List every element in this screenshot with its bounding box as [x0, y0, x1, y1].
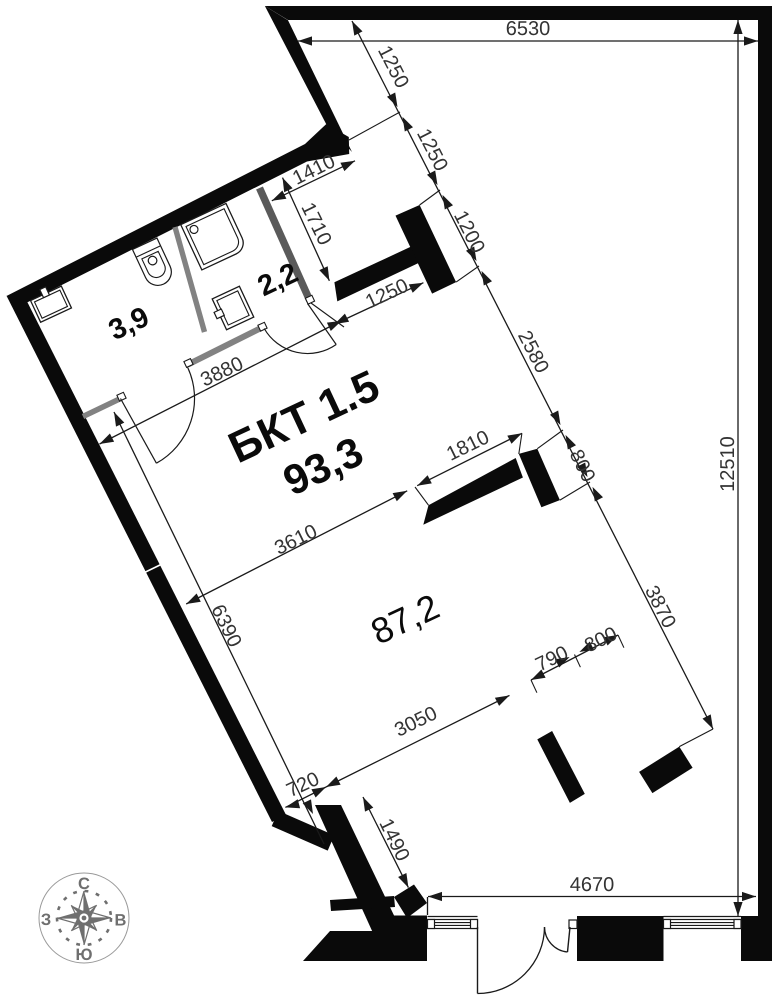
svg-text:6530: 6530	[506, 18, 551, 40]
svg-text:12510: 12510	[717, 436, 739, 492]
svg-text:С: С	[78, 875, 90, 893]
svg-text:В: В	[115, 912, 127, 930]
svg-text:4670: 4670	[570, 874, 615, 896]
svg-text:З: З	[41, 911, 51, 929]
svg-text:Ю: Ю	[75, 946, 92, 964]
